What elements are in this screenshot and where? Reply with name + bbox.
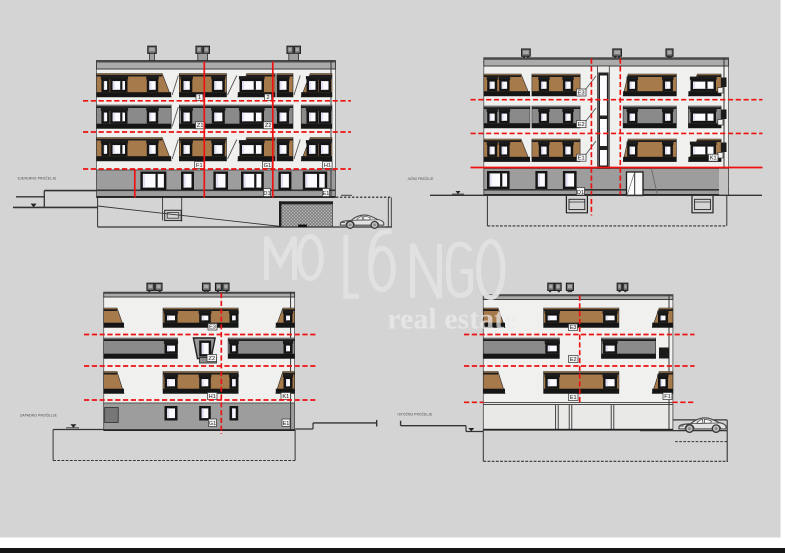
svg-text:E1: E1 [323,191,330,197]
svg-text:E2: E2 [578,122,585,128]
svg-text:E1: E1 [283,421,290,427]
svg-text:H1: H1 [324,163,331,169]
svg-text:ZAPADNO PROČELJE: ZAPADNO PROČELJE [20,413,57,418]
svg-text:SJEVERNO PROČELJE: SJEVERNO PROČELJE [18,175,57,180]
svg-text:K1: K1 [282,394,289,400]
svg-text:Z2: Z2 [209,356,216,362]
svg-text:E2: E2 [570,357,577,363]
svg-text:E3: E3 [209,324,216,330]
svg-text:D1: D1 [263,191,270,197]
svg-text:real estate: real estate [387,303,517,336]
svg-text:E1: E1 [570,395,577,401]
svg-text:E1: E1 [578,156,585,162]
svg-text:F1: F1 [664,394,671,400]
svg-text:ISTOČNO PROČELJE: ISTOČNO PROČELJE [398,412,433,417]
svg-text:F1: F1 [196,163,203,169]
svg-text:G1: G1 [264,163,271,169]
svg-text:JUŽNO PROČELJE: JUŽNO PROČELJE [408,176,434,181]
svg-text:H1: H1 [209,394,216,400]
svg-text:K1: K1 [710,156,717,162]
svg-text:E3: E3 [578,90,585,96]
svg-text:G1: G1 [209,421,216,427]
svg-text:Z2: Z2 [265,123,272,129]
svg-text:E3: E3 [570,325,577,331]
svg-text:Z1: Z1 [197,123,204,129]
